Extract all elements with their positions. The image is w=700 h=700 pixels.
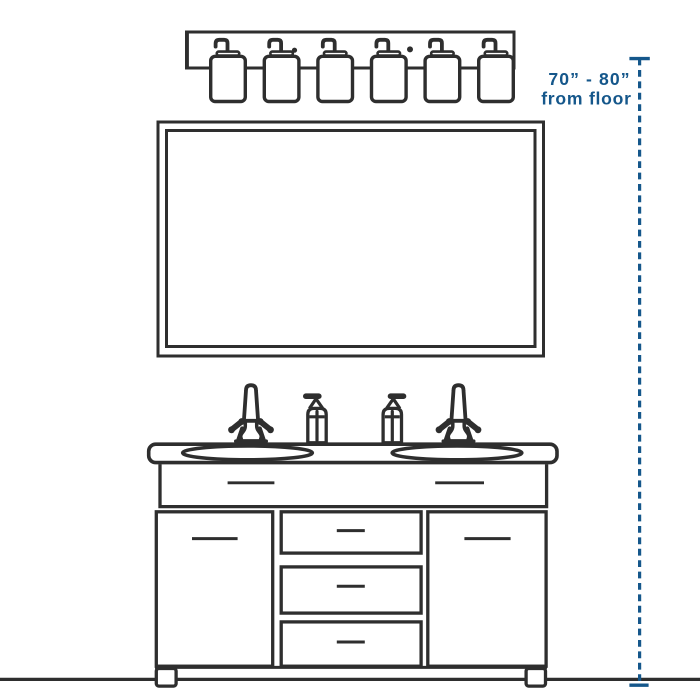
svg-text:70” - 80”: 70” - 80” <box>548 69 630 89</box>
svg-text:from floor: from floor <box>541 89 632 109</box>
